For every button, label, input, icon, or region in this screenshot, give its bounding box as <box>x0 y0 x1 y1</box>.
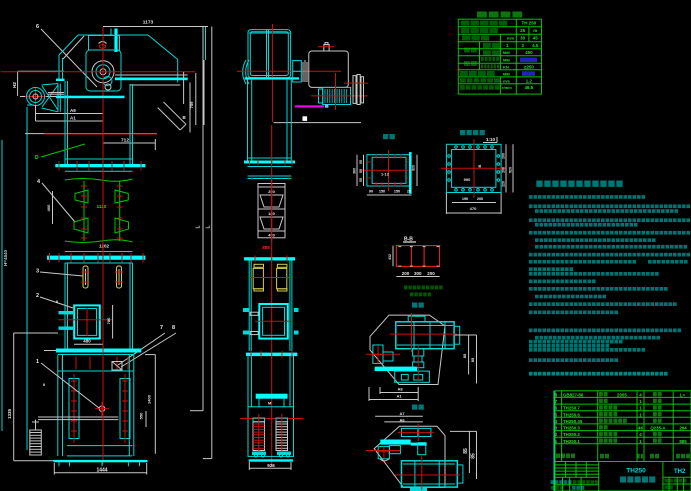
svg-text:II: II <box>56 299 58 304</box>
svg-text:A1: A1 <box>70 116 76 121</box>
svg-text:55: 55 <box>359 160 363 164</box>
svg-text:II: II <box>43 382 45 387</box>
svg-text:TH250: TH250 <box>626 468 646 475</box>
svg-text:TH250.2: TH250.2 <box>563 432 580 437</box>
svg-text:Q235-A: Q235-A <box>650 426 666 431</box>
svg-text:TH250.7: TH250.7 <box>563 406 580 411</box>
svg-text:KN: KN <box>503 64 509 69</box>
svg-text:TH250.3: TH250.3 <box>563 426 580 431</box>
svg-text:1-12: 1-12 <box>381 172 390 177</box>
svg-text:6: 6 <box>36 24 39 30</box>
svg-text:r/min: r/min <box>502 85 512 90</box>
svg-text:8: 8 <box>172 325 175 331</box>
svg-text:MM: MM <box>503 50 510 55</box>
svg-text:200: 200 <box>427 271 435 276</box>
svg-text:200: 200 <box>502 153 506 159</box>
svg-text:2: 2 <box>36 293 39 299</box>
svg-text:520: 520 <box>509 167 513 173</box>
svg-text:MM: MM <box>503 71 510 76</box>
svg-text:H=4840: H=4840 <box>3 250 8 266</box>
svg-text:46.5: 46.5 <box>525 85 534 90</box>
svg-text:480: 480 <box>83 338 91 343</box>
svg-text:885: 885 <box>679 439 687 444</box>
svg-text:1120: 1120 <box>97 204 107 209</box>
svg-text:450: 450 <box>525 50 533 55</box>
svg-text:m/s: m/s <box>503 78 511 83</box>
svg-text:1: 1 <box>36 359 39 365</box>
svg-text:45: 45 <box>533 36 539 41</box>
svg-text:≥250: ≥250 <box>524 64 534 69</box>
svg-text:GB827-86: GB827-86 <box>563 392 584 397</box>
svg-text:1:10: 1:10 <box>486 137 496 142</box>
svg-text:470: 470 <box>470 206 477 211</box>
svg-text:320: 320 <box>412 165 416 171</box>
svg-text:220: 220 <box>502 181 506 187</box>
svg-text:1.2: 1.2 <box>526 78 533 83</box>
svg-text:85: 85 <box>471 453 477 459</box>
svg-text:7: 7 <box>160 325 163 331</box>
svg-text:H2: H2 <box>12 82 17 88</box>
svg-text:A8: A8 <box>397 387 403 392</box>
svg-text:85: 85 <box>463 448 469 454</box>
svg-text:D: D <box>35 155 39 161</box>
svg-text:759: 759 <box>189 101 194 108</box>
svg-text:A9: A9 <box>70 108 76 113</box>
svg-text:25: 25 <box>520 28 526 33</box>
svg-text:400: 400 <box>46 204 51 211</box>
svg-text:85: 85 <box>470 357 475 362</box>
svg-text:926: 926 <box>267 463 275 468</box>
svg-text:300: 300 <box>414 271 422 276</box>
svg-text:TH250.1: TH250.1 <box>563 439 580 444</box>
svg-text:55: 55 <box>359 178 363 182</box>
svg-text:1202: 1202 <box>99 244 110 249</box>
svg-text:85: 85 <box>462 353 467 358</box>
svg-text:190: 190 <box>462 197 468 201</box>
svg-text:900: 900 <box>464 177 471 182</box>
svg-text:90: 90 <box>369 190 373 194</box>
svg-text:200: 200 <box>477 197 483 201</box>
svg-text:3: 3 <box>36 269 39 275</box>
svg-text:1400: 1400 <box>147 394 152 404</box>
svg-text:150: 150 <box>379 190 385 194</box>
svg-text:A7: A7 <box>399 411 405 416</box>
svg-text:MM: MM <box>503 58 510 63</box>
svg-text:200: 200 <box>402 271 410 276</box>
svg-text:TH2: TH2 <box>674 469 686 475</box>
svg-text:2005: 2005 <box>617 392 627 397</box>
svg-text:46: 46 <box>638 426 643 431</box>
svg-text:4.5: 4.5 <box>532 43 539 48</box>
svg-text:20: 20 <box>407 190 411 194</box>
svg-text:A1: A1 <box>396 394 402 399</box>
svg-text:L: L <box>205 225 211 228</box>
svg-text:432: 432 <box>388 254 392 260</box>
svg-text:200: 200 <box>502 167 506 173</box>
svg-text:TH250.6: TH250.6 <box>563 412 580 417</box>
svg-text:550: 550 <box>139 412 144 419</box>
svg-text:1335: 1335 <box>7 408 12 419</box>
svg-text:150: 150 <box>394 190 400 194</box>
svg-text:780: 780 <box>106 317 111 324</box>
svg-text:264: 264 <box>679 426 687 431</box>
svg-text:m: m <box>533 28 537 33</box>
svg-text:TH 250: TH 250 <box>522 21 537 26</box>
svg-text:1173: 1173 <box>143 20 154 26</box>
svg-text:30: 30 <box>520 36 526 41</box>
svg-text:L: L <box>196 225 202 228</box>
svg-text:888: 888 <box>262 245 270 250</box>
svg-text:360: 360 <box>353 168 357 174</box>
svg-text:B: B <box>477 164 482 167</box>
svg-text:mm: mm <box>507 36 515 41</box>
svg-text:55: 55 <box>359 169 363 173</box>
svg-text:L=: L= <box>680 392 686 397</box>
svg-text:TH250.45: TH250.45 <box>563 419 583 424</box>
